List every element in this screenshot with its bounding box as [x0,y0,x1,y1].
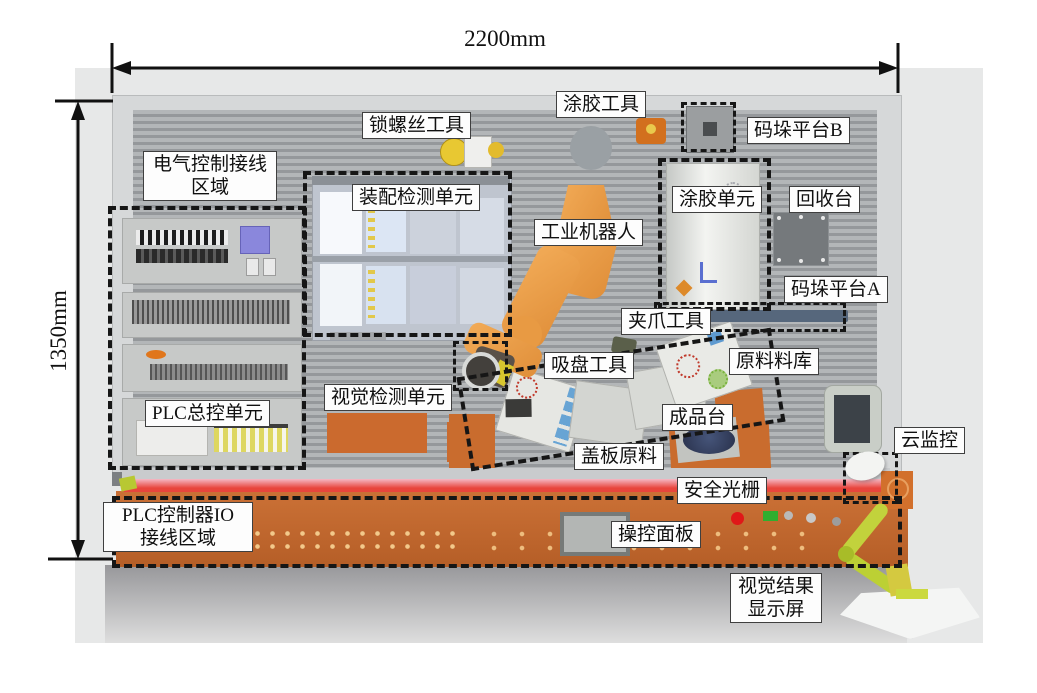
dim-width-arrow-left [112,61,131,75]
diagram-canvas: 2200mm 1350mm 锁螺丝工具 涂胶工具 码垛平台B 电气控制接线 区域… [0,0,1037,693]
dim-width-arrow-right [879,61,898,75]
dim-width-text: 2200mm [430,26,580,52]
dim-height-arrow-bottom [71,540,85,559]
dim-height-arrow-top [71,101,85,120]
dimension-lines [0,0,1037,693]
dim-height-text: 1350mm [46,290,72,372]
